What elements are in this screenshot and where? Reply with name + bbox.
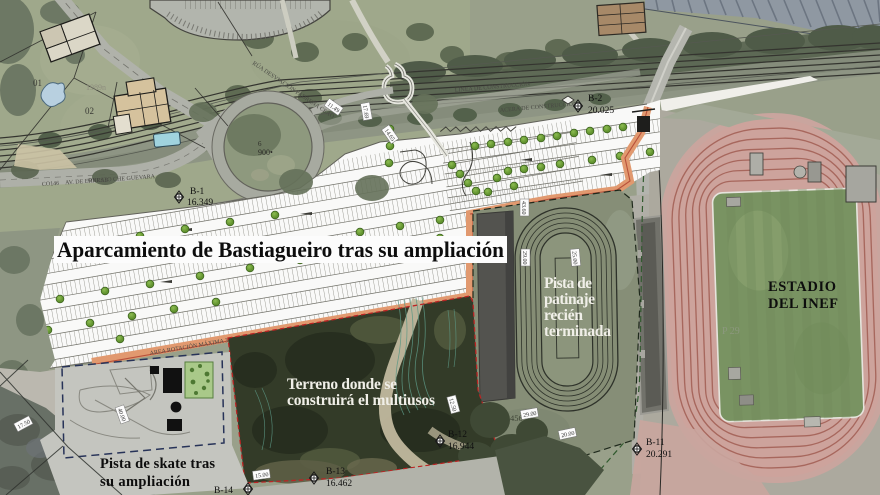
svg-text:02: 02 (85, 106, 94, 116)
svg-text:B-12: B-12 (448, 430, 467, 440)
svg-text:900•: 900• (258, 148, 273, 157)
svg-text:patinaje: patinaje (544, 291, 595, 308)
svg-text:P 29: P 29 (722, 326, 740, 337)
svg-text:Pista de: Pista de (544, 275, 592, 292)
svg-text:1989n: 1989n (86, 83, 106, 92)
svg-text:29.00: 29.00 (521, 251, 527, 265)
svg-text:B-11: B-11 (646, 438, 665, 448)
svg-text:B-1: B-1 (190, 187, 205, 197)
svg-text:OBRAS: OBRAS (88, 178, 108, 184)
svg-text:25.00: 25.00 (570, 251, 577, 265)
svg-text:B-14: B-14 (214, 486, 233, 495)
svg-text:construirá el multiusos: construirá el multiusos (287, 392, 435, 409)
svg-text:20.291: 20.291 (646, 450, 672, 460)
svg-text:20.025: 20.025 (588, 106, 614, 116)
svg-text:16.349: 16.349 (187, 198, 213, 208)
svg-text:43.60: 43.60 (520, 201, 526, 215)
svg-text:B-2: B-2 (588, 94, 603, 104)
svg-text:01: 01 (33, 78, 42, 88)
svg-text:Terreno donde se: Terreno donde se (287, 376, 397, 393)
svg-text:Aparcamiento de Bastiagueiro t: Aparcamiento de Bastiagueiro tras su amp… (57, 237, 504, 262)
svg-text:ESTADIO: ESTADIO (768, 279, 836, 295)
svg-text:DEL INEF: DEL INEF (768, 296, 838, 312)
svg-text:6: 6 (258, 140, 262, 148)
svg-text:recién: recién (544, 307, 583, 324)
svg-text:su ampliación: su ampliación (100, 474, 190, 490)
svg-text:Pista de skate tras: Pista de skate tras (100, 456, 215, 472)
svg-text:B-13: B-13 (326, 467, 345, 477)
svg-text:16.462: 16.462 (326, 479, 352, 489)
svg-text:16.944: 16.944 (448, 442, 474, 452)
svg-text:terminada: terminada (544, 323, 611, 340)
